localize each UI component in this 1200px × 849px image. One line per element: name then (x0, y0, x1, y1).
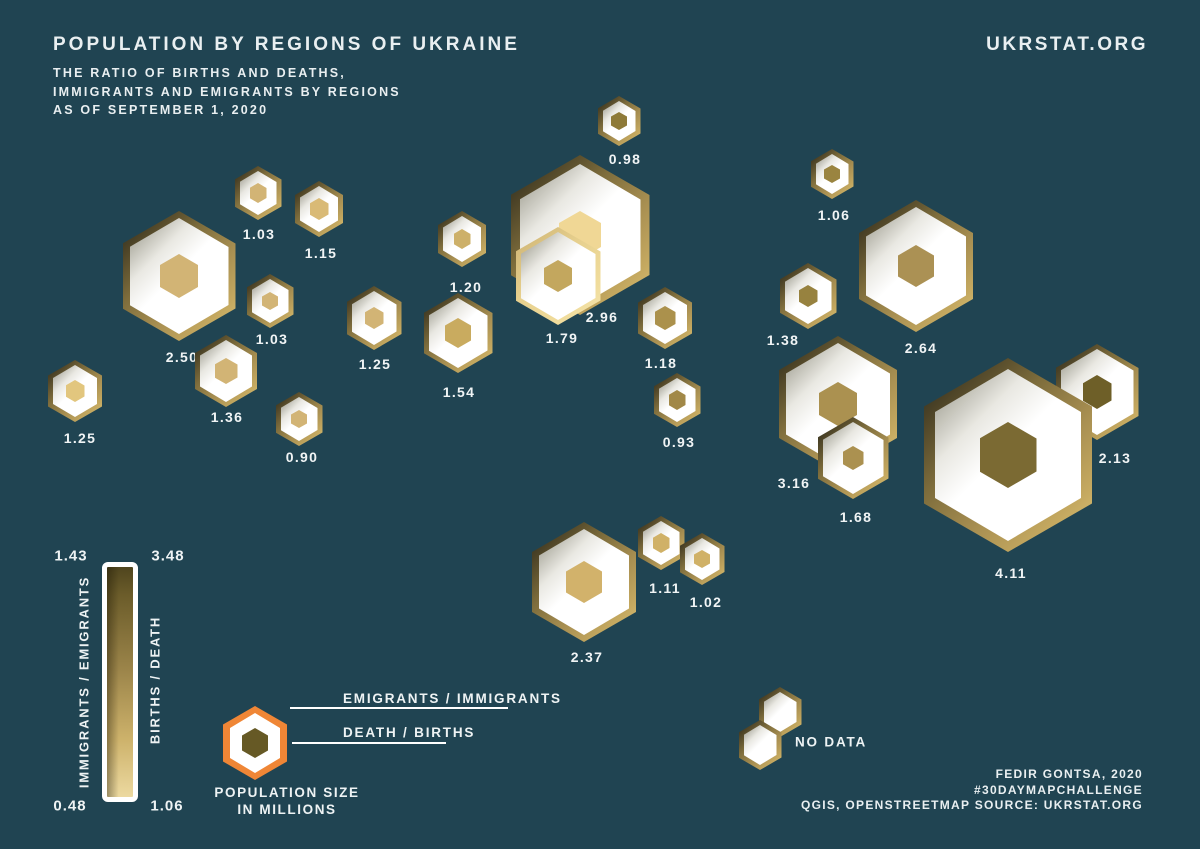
subtitle-line-3: AS OF SEPTEMBER 1, 2020 (53, 101, 401, 120)
region-value-label: 1.25 (359, 356, 391, 372)
region-value-label: 0.93 (663, 434, 695, 450)
region-value-label: 1.68 (840, 509, 872, 525)
region-value-label: 0.98 (609, 151, 641, 167)
scale-births-max: 3.48 (151, 548, 184, 565)
region-value-label: 1.54 (443, 384, 475, 400)
credits-block: FEDIR GONTSA, 2020 #30DAYMAPCHALLENGE QG… (801, 767, 1143, 814)
region-hexagon (195, 335, 257, 407)
subtitle-line-2: IMMIGRANTS AND EMIGRANTS BY REGIONS (53, 83, 401, 102)
region-hexagon-interior (744, 725, 777, 765)
no-data-label: NO DATA (795, 735, 867, 750)
key-core-label: DEATH / BIRTHS (343, 725, 475, 740)
key-ring-label: EMIGRANTS / IMMIGRANTS (343, 691, 562, 706)
page-title: POPULATION BY REGIONS OF UKRAINE (53, 34, 520, 56)
region-hexagon (680, 533, 725, 585)
key-size-label: POPULATION SIZE IN MILLIONS (207, 784, 367, 818)
key-callout-line-ring (290, 707, 508, 709)
scale-axis-immigrants-emigrants: IMMIGRANTS / EMIGRANTS (77, 576, 92, 788)
region-value-label: 1.79 (546, 330, 578, 346)
region-hexagon (235, 166, 282, 220)
key-size-label-line-2: IN MILLIONS (207, 801, 367, 818)
credit-challenge: #30DAYMAPCHALLENGE (801, 783, 1143, 799)
region-hexagon (438, 211, 486, 267)
region-value-label: 1.20 (450, 279, 482, 295)
region-value-label: 1.02 (690, 594, 722, 610)
subtitle-line-1: THE RATIO OF BIRTHS AND DEATHS, (53, 64, 401, 83)
scale-immigrants-max: 1.43 (54, 548, 87, 565)
scale-immigrants-min: 0.48 (53, 798, 86, 815)
key-size-label-line-1: POPULATION SIZE (207, 784, 367, 801)
region-hexagon (811, 149, 854, 199)
scale-births-min: 1.06 (150, 798, 183, 815)
region-hexagon (123, 211, 236, 341)
region-hexagon (295, 181, 343, 237)
region-value-label: 2.13 (1099, 450, 1131, 466)
region-value-label: 2.96 (586, 309, 618, 325)
region-hexagon (638, 516, 685, 570)
region-hexagon (532, 522, 636, 642)
region-hexagon (598, 96, 641, 146)
region-hexagon (780, 263, 837, 329)
region-hexagon (638, 287, 692, 349)
region-value-label: 2.64 (905, 340, 937, 356)
region-value-label: 0.90 (286, 449, 318, 465)
region-hexagon (48, 360, 102, 422)
region-hexagon (424, 293, 493, 373)
region-hexagon (247, 274, 294, 328)
region-value-label: 1.11 (649, 580, 681, 596)
region-hexagon (347, 286, 402, 350)
key-callout-line-core (292, 742, 446, 744)
source-site-label: UKRSTAT.ORG (986, 34, 1148, 56)
region-value-label: 1.15 (305, 245, 337, 261)
region-value-label: 1.36 (211, 409, 243, 425)
region-value-label: 2.50 (166, 349, 198, 365)
region-value-label: 1.03 (243, 226, 275, 242)
key-hexagon (223, 706, 287, 780)
region-hexagon (859, 200, 973, 332)
color-scale-bar (102, 562, 138, 802)
infographic-canvas: POPULATION BY REGIONS OF UKRAINE THE RAT… (0, 0, 1200, 849)
region-hexagon (276, 392, 323, 446)
region-hexagon (654, 373, 701, 427)
region-value-label: 3.16 (778, 475, 810, 491)
region-value-label: 1.38 (767, 332, 799, 348)
region-value-label: 2.37 (571, 649, 603, 665)
region-value-label: 1.03 (256, 331, 288, 347)
page-subtitle: THE RATIO OF BIRTHS AND DEATHS, IMMIGRAN… (53, 64, 401, 120)
region-value-label: 4.11 (995, 565, 1027, 581)
credit-author: FEDIR GONTSA, 2020 (801, 767, 1143, 783)
region-value-label: 1.06 (818, 207, 850, 223)
credit-source: QGIS, OPENSTREETMAP SOURCE: UKRSTAT.ORG (801, 798, 1143, 814)
region-value-label: 1.25 (64, 430, 96, 446)
scale-axis-births-death: BIRTHS / DEATH (148, 616, 163, 744)
region-value-label: 1.18 (645, 355, 677, 371)
